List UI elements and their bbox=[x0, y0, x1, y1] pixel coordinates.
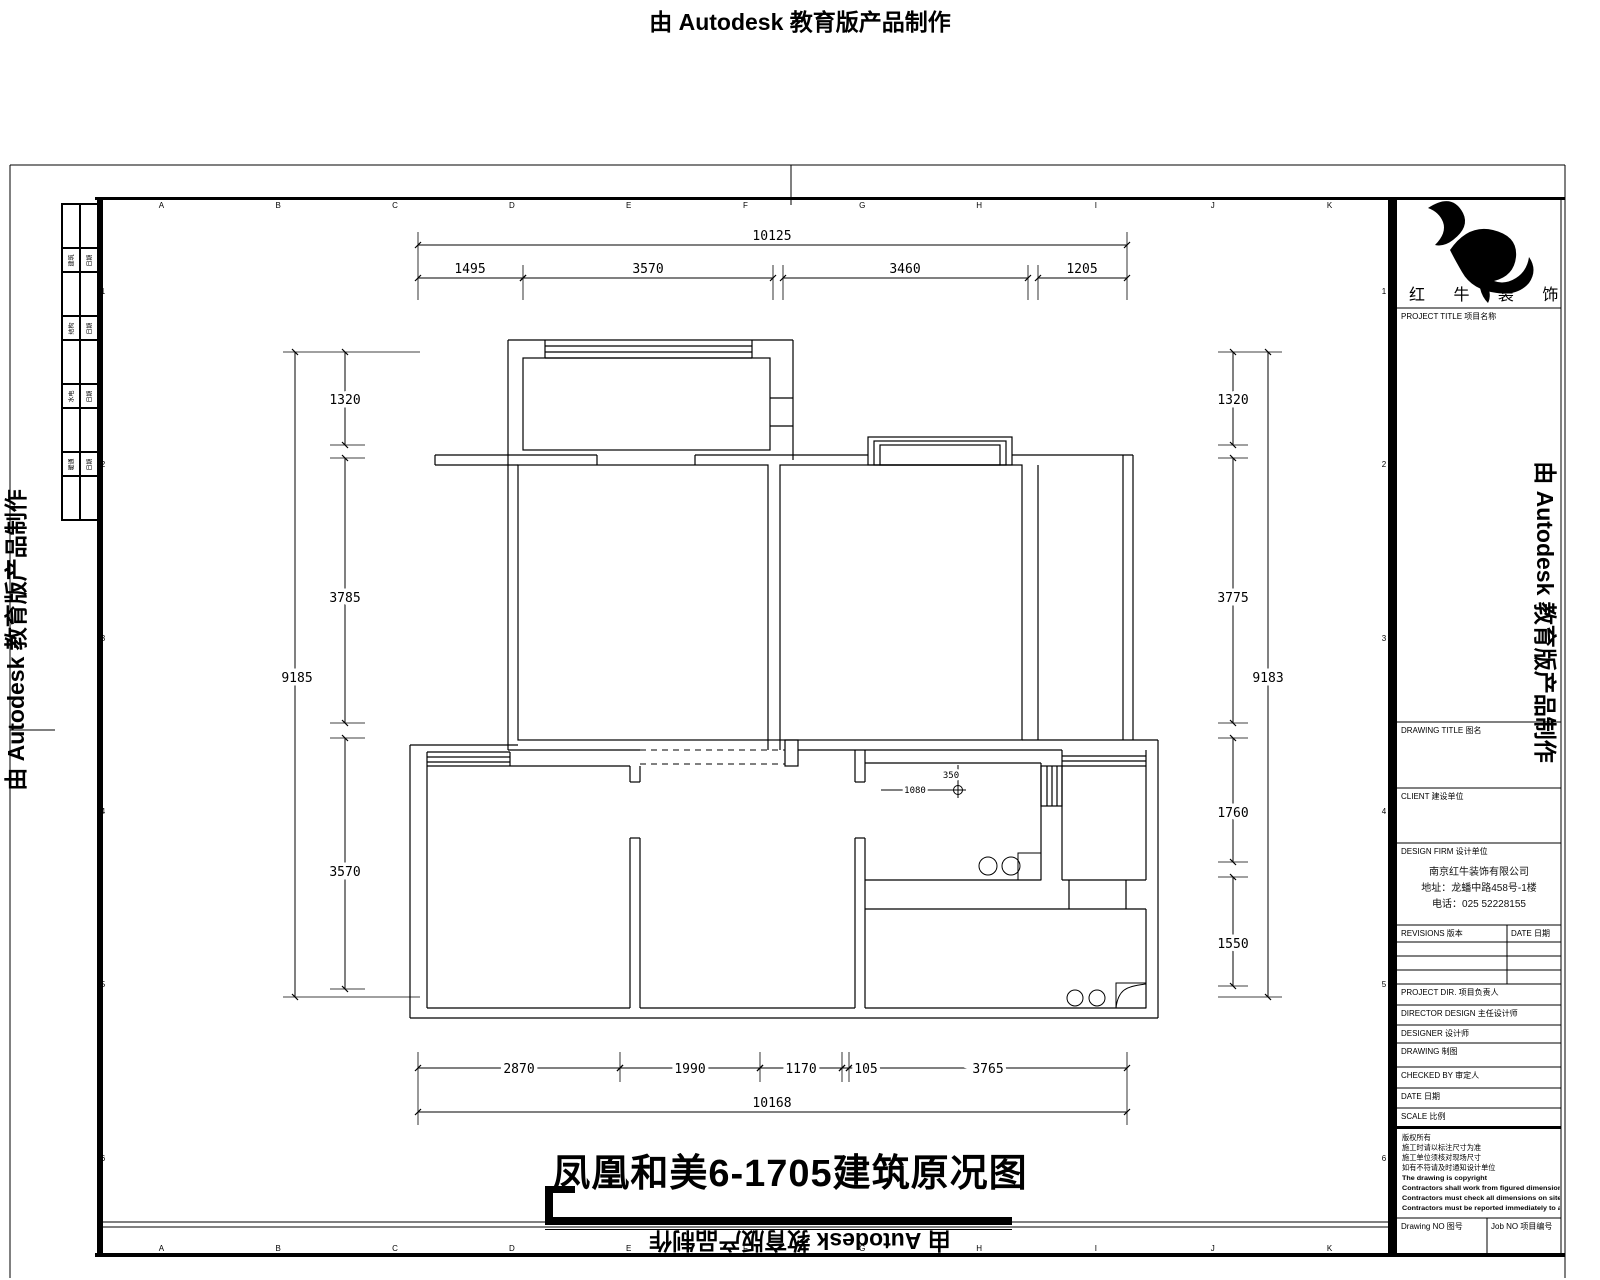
grid-label: 3 bbox=[1378, 552, 1390, 725]
grid-label: C bbox=[337, 200, 454, 212]
dim-bottom-overall: 10168 bbox=[752, 1096, 791, 1111]
field-scale: SCALE 比例 bbox=[1401, 1111, 1559, 1122]
note-line: Contractors shall work from figured dime… bbox=[1402, 1183, 1560, 1193]
dim-label: 1550 bbox=[1217, 937, 1248, 952]
strip-cell: 日期 bbox=[80, 452, 98, 476]
dim-label: 105 bbox=[854, 1062, 877, 1077]
strip-cell bbox=[80, 408, 98, 452]
grid-label: K bbox=[1271, 200, 1388, 212]
plumbing-fixtures bbox=[881, 765, 1146, 1008]
field-designer: DESIGNER 设计师 bbox=[1401, 1028, 1559, 1039]
plan-title: 凤凰和美6-1705建筑原况图 bbox=[480, 1142, 1100, 1197]
grid-label: F bbox=[687, 1243, 804, 1255]
grid-label: J bbox=[1154, 200, 1271, 212]
strip-cell: 建筑 bbox=[62, 248, 80, 272]
strip-cell bbox=[62, 408, 80, 452]
field-design-firm: DESIGN FIRM 设计单位 bbox=[1401, 846, 1559, 857]
grid-label: 4 bbox=[97, 725, 109, 898]
dim-label: 1170 bbox=[785, 1062, 816, 1077]
dim-label: 1320 bbox=[329, 393, 360, 408]
field-director-design: DIRECTOR DESIGN 主任设计师 bbox=[1401, 1008, 1559, 1019]
cad-drawing-page: { "watermarks": { "top": "由 Autodesk 教育版… bbox=[0, 0, 1600, 1280]
grid-label: 4 bbox=[1378, 725, 1390, 898]
dim-top-overall: 10125 bbox=[752, 229, 791, 244]
field-checked-by: CHECKED BY 审定人 bbox=[1401, 1070, 1559, 1081]
dim-label: 1760 bbox=[1217, 806, 1248, 821]
dim-right-overall: 9183 bbox=[1252, 671, 1283, 686]
note-line: Contractors must be reported immediately… bbox=[1402, 1203, 1560, 1213]
dim-drain-distance: 1080 bbox=[904, 786, 926, 796]
extension-lines bbox=[283, 232, 1282, 1125]
company-name: 南京红牛装饰有限公司 bbox=[1397, 863, 1561, 878]
grid-label: 5 bbox=[97, 898, 109, 1071]
grid-label: A bbox=[103, 1243, 220, 1255]
grid-label: 6 bbox=[97, 1072, 109, 1245]
outer-border bbox=[10, 165, 1565, 1278]
field-date-col: DATE 日期 bbox=[1511, 928, 1559, 939]
strip-cell bbox=[80, 340, 98, 384]
grid-label: 2 bbox=[1378, 378, 1390, 551]
grid-label: G bbox=[804, 1243, 921, 1255]
grid-label: A bbox=[103, 200, 220, 212]
grid-label: 5 bbox=[1378, 898, 1390, 1071]
note-line: 施工时请以标注尺寸为准 bbox=[1402, 1143, 1560, 1153]
strip-cell: 暖通 bbox=[62, 452, 80, 476]
field-drawing-no: Drawing NO 图号 bbox=[1401, 1221, 1485, 1232]
strip-cell bbox=[62, 340, 80, 384]
grid-label: D bbox=[453, 200, 570, 212]
grid-label: J bbox=[1154, 1243, 1271, 1255]
strip-cell bbox=[62, 272, 80, 316]
grid-label: E bbox=[570, 200, 687, 212]
company-address: 地址：龙蟠中路458号-1楼 bbox=[1397, 879, 1561, 894]
strip-cell bbox=[62, 204, 80, 248]
dim-drain-offset: 350 bbox=[943, 771, 959, 781]
strip-cell: 日期 bbox=[80, 316, 98, 340]
note-line: 版权所有 bbox=[1402, 1133, 1560, 1143]
title-block-notes: 版权所有施工时请以标注尺寸为准施工单位须核对现场尺寸如有不符请及时通知设计单位T… bbox=[1402, 1133, 1560, 1213]
strip-cell: 日期 bbox=[80, 384, 98, 408]
field-project-dir: PROJECT DIR. 项目负责人 bbox=[1401, 987, 1559, 998]
grid-label: I bbox=[1038, 200, 1155, 212]
dim-label: 1495 bbox=[454, 262, 485, 277]
dim-label: 3570 bbox=[329, 865, 360, 880]
drawing-canvas: 10125 1495 3570 3460 1205 2870 1990 1170… bbox=[0, 0, 1600, 1280]
strip-cell: 日期 bbox=[80, 248, 98, 272]
grid-label: H bbox=[921, 200, 1038, 212]
dashed-opening-lines bbox=[640, 750, 785, 764]
dim-label: 2870 bbox=[503, 1062, 534, 1077]
dim-label: 1990 bbox=[674, 1062, 705, 1077]
signature-strip: 建筑日期结构日期水电日期暖通日期 bbox=[61, 203, 99, 521]
grid-letters-bottom: ABCDEFGHIJK bbox=[103, 1243, 1388, 1255]
dim-label: 3775 bbox=[1217, 591, 1248, 606]
strip-cell: 结构 bbox=[62, 316, 80, 340]
field-project-title: PROJECT TITLE 项目名称 bbox=[1401, 311, 1559, 322]
field-date: DATE 日期 bbox=[1401, 1091, 1559, 1102]
grid-label: C bbox=[337, 1243, 454, 1255]
grid-label: K bbox=[1271, 1243, 1388, 1255]
field-job-no: Job NO 项目编号 bbox=[1491, 1221, 1559, 1232]
strip-cell bbox=[80, 272, 98, 316]
dim-label: 1320 bbox=[1217, 393, 1248, 408]
dimension-lines bbox=[295, 245, 1268, 1112]
grid-label: 1 bbox=[1378, 205, 1390, 378]
grid-label: H bbox=[921, 1243, 1038, 1255]
floor-plan-walls bbox=[410, 340, 1158, 1018]
title-block: 红 牛 装 饰 PROJECT TITLE 项目名称 DRAWING TITLE… bbox=[1397, 197, 1561, 1256]
sheet-frame bbox=[95, 197, 1565, 1257]
dim-label: 1205 bbox=[1066, 262, 1097, 277]
field-revisions: REVISIONS 版本 bbox=[1401, 928, 1501, 939]
dim-label: 3785 bbox=[329, 591, 360, 606]
autodesk-watermark-top: 由 Autodesk 教育版产品制作 bbox=[0, 3, 1600, 37]
grid-numbers-right: 123456 bbox=[1378, 205, 1390, 1245]
dim-label: 3570 bbox=[632, 262, 663, 277]
strip-cell bbox=[62, 476, 80, 520]
field-client: CLIENT 建设单位 bbox=[1401, 791, 1559, 802]
grid-label: B bbox=[220, 1243, 337, 1255]
note-line: The drawing is copyright bbox=[1402, 1173, 1560, 1183]
autodesk-watermark-left: 由 Autodesk 教育版产品制作 bbox=[0, 489, 31, 791]
strip-cell bbox=[80, 204, 98, 248]
field-drawing: DRAWING 制图 bbox=[1401, 1046, 1559, 1057]
strip-cell: 水电 bbox=[62, 384, 80, 408]
grid-label: D bbox=[453, 1243, 570, 1255]
grid-label: 6 bbox=[1378, 1072, 1390, 1245]
dim-label: 3460 bbox=[889, 262, 920, 277]
grid-label: G bbox=[804, 200, 921, 212]
dim-label: 3765 bbox=[972, 1062, 1003, 1077]
note-line: 如有不符请及时通知设计单位 bbox=[1402, 1163, 1560, 1173]
note-line: Contractors must check all dimensions on… bbox=[1402, 1193, 1560, 1203]
grid-label: E bbox=[570, 1243, 687, 1255]
grid-label: B bbox=[220, 200, 337, 212]
strip-cell bbox=[80, 476, 98, 520]
grid-letters-top: ABCDEFGHIJK bbox=[103, 200, 1388, 212]
grid-label: 3 bbox=[97, 552, 109, 725]
company-phone: 电话：025 52228155 bbox=[1397, 895, 1561, 910]
grid-label: F bbox=[687, 200, 804, 212]
dim-left-overall: 9185 bbox=[281, 671, 312, 686]
grid-label: I bbox=[1038, 1243, 1155, 1255]
field-drawing-title: DRAWING TITLE 图名 bbox=[1401, 725, 1559, 736]
note-line: 施工单位须核对现场尺寸 bbox=[1402, 1153, 1560, 1163]
brand-name: 红 牛 装 饰 bbox=[1397, 281, 1561, 305]
